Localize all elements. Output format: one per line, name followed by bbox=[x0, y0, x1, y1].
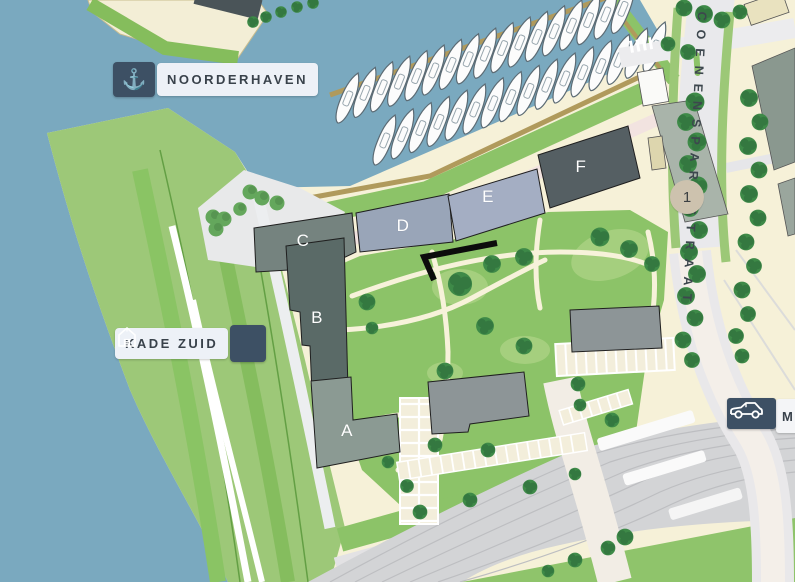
warehouse-icon bbox=[230, 325, 266, 362]
park-building-east bbox=[570, 306, 662, 352]
boathouse bbox=[637, 68, 669, 106]
car-icon[interactable] bbox=[727, 398, 776, 429]
building-label-c[interactable]: C bbox=[297, 231, 310, 251]
marker-1[interactable]: 1 bbox=[670, 180, 704, 214]
noorderhaven-badge[interactable]: ⚓ NOORDERHAVEN bbox=[113, 62, 318, 97]
mobility-label: M bbox=[776, 399, 795, 433]
building-label-e[interactable]: E bbox=[482, 187, 494, 207]
building-label-b[interactable]: B bbox=[311, 308, 323, 328]
building-label-d[interactable]: D bbox=[397, 216, 410, 236]
kade-zuid-badge[interactable]: KADE ZUID bbox=[115, 325, 266, 362]
anchor-icon: ⚓ bbox=[113, 62, 155, 97]
map-canvas: A B C D E F COENENSPARKSTRAAT ⚓ NOORDERH… bbox=[0, 0, 795, 582]
building-label-f[interactable]: F bbox=[576, 157, 587, 177]
building-label-a[interactable]: A bbox=[341, 421, 353, 441]
noorderhaven-label: NOORDERHAVEN bbox=[157, 63, 318, 96]
